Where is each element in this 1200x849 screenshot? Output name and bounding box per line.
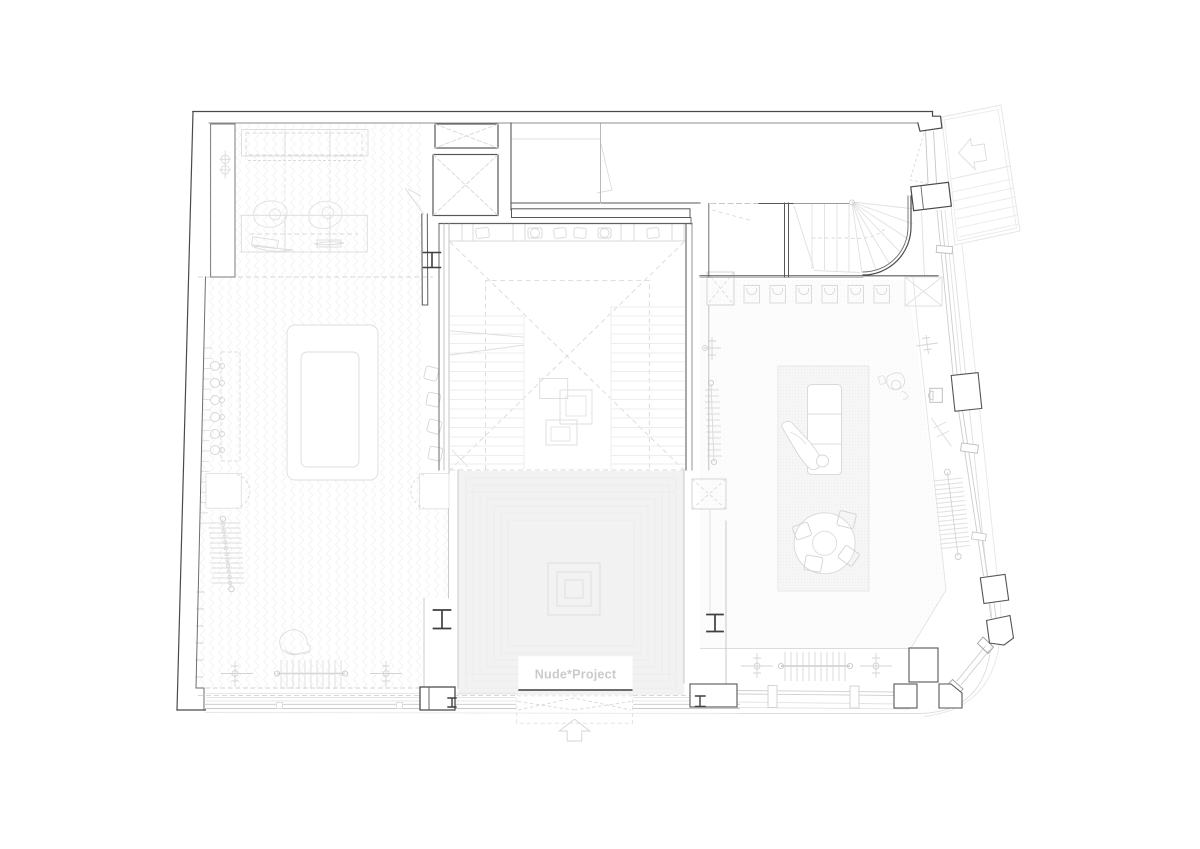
svg-text:Nude*Project: Nude*Project <box>535 668 617 682</box>
